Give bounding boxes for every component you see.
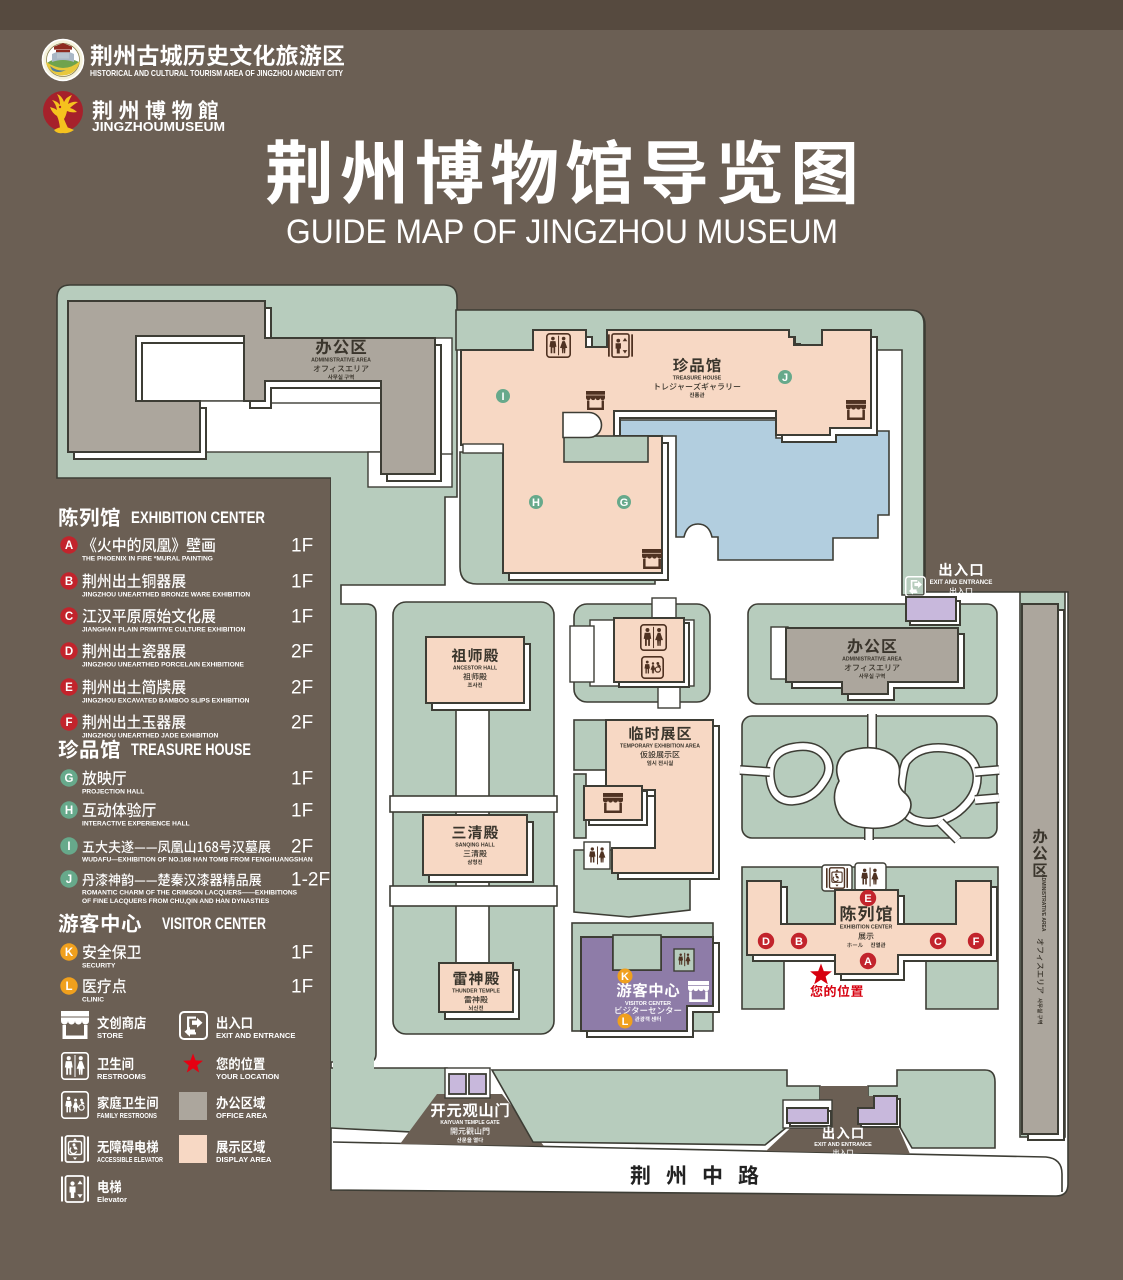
svg-text:GUIDE MAP OF JINGZHOU MUSEUM: GUIDE MAP OF JINGZHOU MUSEUM bbox=[286, 213, 838, 251]
svg-text:1-2F: 1-2F bbox=[291, 870, 330, 891]
svg-text:THUNDER TEMPLE: THUNDER TEMPLE bbox=[452, 989, 500, 995]
svg-text:JIANGHAN PLAIN PRIMITIVE CULTU: JIANGHAN PLAIN PRIMITIVE CULTURE EXHIBIT… bbox=[82, 627, 246, 634]
svg-text:TEMPORARY EXHIBITION AREA: TEMPORARY EXHIBITION AREA bbox=[620, 744, 700, 750]
svg-text:A: A bbox=[65, 540, 73, 552]
svg-text:2F: 2F bbox=[291, 678, 313, 699]
svg-text:L: L bbox=[622, 1016, 629, 1028]
svg-text:CLINIC: CLINIC bbox=[82, 997, 104, 1004]
svg-text:1F: 1F bbox=[291, 607, 313, 628]
svg-text:HISTORICAL AND CULTURAL TOURIS: HISTORICAL AND CULTURAL TOURISM AREA OF … bbox=[90, 69, 343, 78]
svg-text:DISPLAY AREA: DISPLAY AREA bbox=[216, 1155, 272, 1164]
svg-text:A: A bbox=[864, 956, 872, 968]
svg-text:K: K bbox=[65, 947, 74, 959]
svg-text:I: I bbox=[67, 841, 70, 853]
svg-text:EXHIBITION CENTER: EXHIBITION CENTER bbox=[131, 509, 265, 527]
svg-text:H: H bbox=[65, 805, 73, 817]
svg-text:H: H bbox=[532, 497, 540, 509]
svg-text:ADMINISTRATIVE AREA: ADMINISTRATIVE AREA bbox=[1040, 874, 1046, 932]
svg-text:EXIT AND ENTRANCE: EXIT AND ENTRANCE bbox=[930, 580, 993, 586]
svg-text:YOUR LOCATION: YOUR LOCATION bbox=[216, 1072, 279, 1081]
svg-text:OF FINE LACQUERS FROM CHU,QIN: OF FINE LACQUERS FROM CHU,QIN AND HAN DY… bbox=[82, 898, 270, 905]
svg-text:INTERACTIVE EXPERIENCE HALL: INTERACTIVE EXPERIENCE HALL bbox=[82, 821, 190, 828]
svg-text:TREASURE HOUSE: TREASURE HOUSE bbox=[131, 741, 251, 759]
svg-text:F: F bbox=[973, 936, 980, 948]
svg-text:STORE: STORE bbox=[97, 1031, 123, 1040]
svg-text:K: K bbox=[621, 971, 629, 983]
svg-text:C: C bbox=[934, 936, 942, 948]
svg-text:E: E bbox=[864, 893, 871, 905]
svg-text:G: G bbox=[65, 773, 74, 785]
svg-text:RESTROOMS: RESTROOMS bbox=[97, 1072, 146, 1081]
svg-text:THE PHOENIX IN FIRE *MURAL PAI: THE PHOENIX IN FIRE *MURAL PAINTING bbox=[82, 556, 213, 563]
svg-text:ACCESSIBLE ELEVATOR: ACCESSIBLE ELEVATOR bbox=[97, 1156, 163, 1164]
svg-text:KAIYUAN TEMPLE GATE: KAIYUAN TEMPLE GATE bbox=[440, 1120, 500, 1126]
svg-text:ANCESTOR HALL: ANCESTOR HALL bbox=[453, 666, 498, 672]
svg-text:OFFICE AREA: OFFICE AREA bbox=[216, 1111, 268, 1120]
svg-text:1F: 1F bbox=[291, 977, 313, 998]
svg-text:1F: 1F bbox=[291, 536, 313, 557]
svg-text:ROMANTIC CHARM OF THE CRIMSON: ROMANTIC CHARM OF THE CRIMSON LACQUERS——… bbox=[82, 890, 298, 897]
svg-text:G: G bbox=[620, 497, 629, 509]
svg-text:JINGZHOU UNEARTHED PORCELAIN E: JINGZHOU UNEARTHED PORCELAIN EXHIBITIONE bbox=[82, 662, 245, 669]
svg-text:F: F bbox=[65, 717, 72, 729]
svg-text:VISITOR CENTER: VISITOR CENTER bbox=[162, 915, 266, 933]
svg-text:VISITOR CENTER: VISITOR CENTER bbox=[625, 1001, 671, 1007]
svg-text:ADMINISTRATIVE AREA: ADMINISTRATIVE AREA bbox=[842, 657, 902, 663]
svg-text:PROJECTION HALL: PROJECTION HALL bbox=[82, 789, 144, 796]
svg-text:JINGZHOU UNEARTHED JADE EXHIBI: JINGZHOU UNEARTHED JADE EXHIBITION bbox=[82, 733, 219, 740]
svg-text:1F: 1F bbox=[291, 769, 313, 790]
svg-text:J: J bbox=[782, 372, 788, 384]
svg-text:1F: 1F bbox=[291, 943, 313, 964]
svg-text:J: J bbox=[66, 874, 72, 886]
svg-text:SANQING HALL: SANQING HALL bbox=[455, 843, 495, 849]
svg-text:WUDAFU—EXHIBITION OF NO.168 HA: WUDAFU—EXHIBITION OF NO.168 HAN TOMB FRO… bbox=[82, 857, 313, 864]
svg-text:1F: 1F bbox=[291, 801, 313, 822]
svg-text:2F: 2F bbox=[291, 713, 313, 734]
svg-text:B: B bbox=[65, 576, 73, 588]
svg-text:SECURITY: SECURITY bbox=[82, 963, 116, 970]
svg-text:JINGZHOU UNEARTHED BRONZE WARE: JINGZHOU UNEARTHED BRONZE WARE EXHIBITIO… bbox=[82, 592, 250, 599]
svg-text:E: E bbox=[65, 682, 73, 694]
svg-text:I: I bbox=[501, 391, 504, 403]
svg-text:2F: 2F bbox=[291, 642, 313, 663]
svg-text:EXHIBITION CENTER: EXHIBITION CENTER bbox=[840, 925, 893, 931]
svg-text:D: D bbox=[65, 646, 73, 658]
svg-text:JINGZHOUMUSEUM: JINGZHOUMUSEUM bbox=[92, 120, 225, 134]
svg-text:B: B bbox=[795, 936, 803, 948]
svg-text:Elevator: Elevator bbox=[97, 1195, 127, 1204]
svg-text:L: L bbox=[65, 981, 72, 993]
svg-text:1F: 1F bbox=[291, 572, 313, 593]
svg-text:C: C bbox=[65, 611, 73, 623]
svg-text:2F: 2F bbox=[291, 837, 313, 858]
svg-text:FAMILY RESTROONS: FAMILY RESTROONS bbox=[97, 1112, 157, 1120]
svg-text:D: D bbox=[762, 936, 770, 948]
svg-text:ADMINISTRATIVE AREA: ADMINISTRATIVE AREA bbox=[311, 358, 371, 364]
svg-text:EXIT AND ENTRANCE: EXIT AND ENTRANCE bbox=[814, 1142, 872, 1148]
svg-text:EXIT AND ENTRANCE: EXIT AND ENTRANCE bbox=[216, 1031, 295, 1040]
svg-text:JINGZHOU EXCAVATED BAMBOO SLIP: JINGZHOU EXCAVATED BAMBOO SLIPS EXHIBITI… bbox=[82, 698, 250, 705]
svg-text:TREASURE HOUSE: TREASURE HOUSE bbox=[673, 376, 722, 382]
